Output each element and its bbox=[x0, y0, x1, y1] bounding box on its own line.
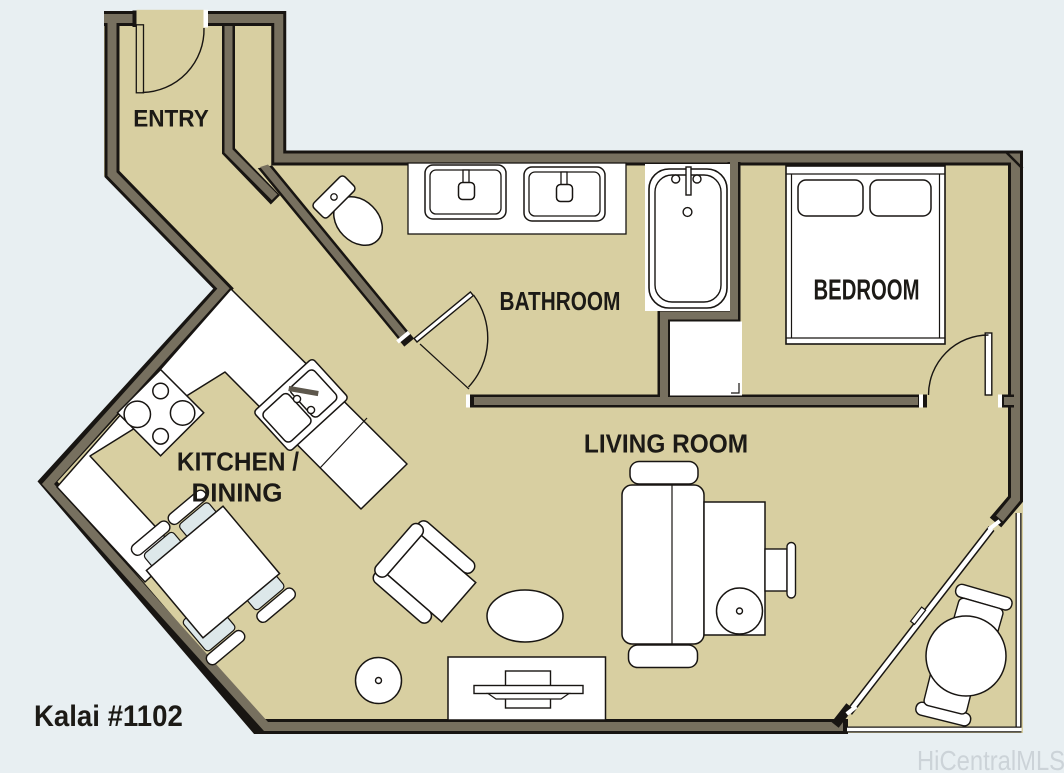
svg-text:LIVING ROOM: LIVING ROOM bbox=[584, 430, 748, 459]
svg-text:HiCentralMLS: HiCentralMLS bbox=[917, 744, 1064, 773]
svg-text:BATHROOM: BATHROOM bbox=[500, 287, 621, 316]
svg-text:KITCHEN /: KITCHEN / bbox=[177, 448, 299, 477]
svg-text:BEDROOM: BEDROOM bbox=[814, 274, 920, 306]
svg-text:DINING: DINING bbox=[192, 478, 283, 508]
svg-text:ENTRY: ENTRY bbox=[133, 105, 209, 132]
svg-text:Kalai #1102: Kalai #1102 bbox=[34, 700, 183, 733]
